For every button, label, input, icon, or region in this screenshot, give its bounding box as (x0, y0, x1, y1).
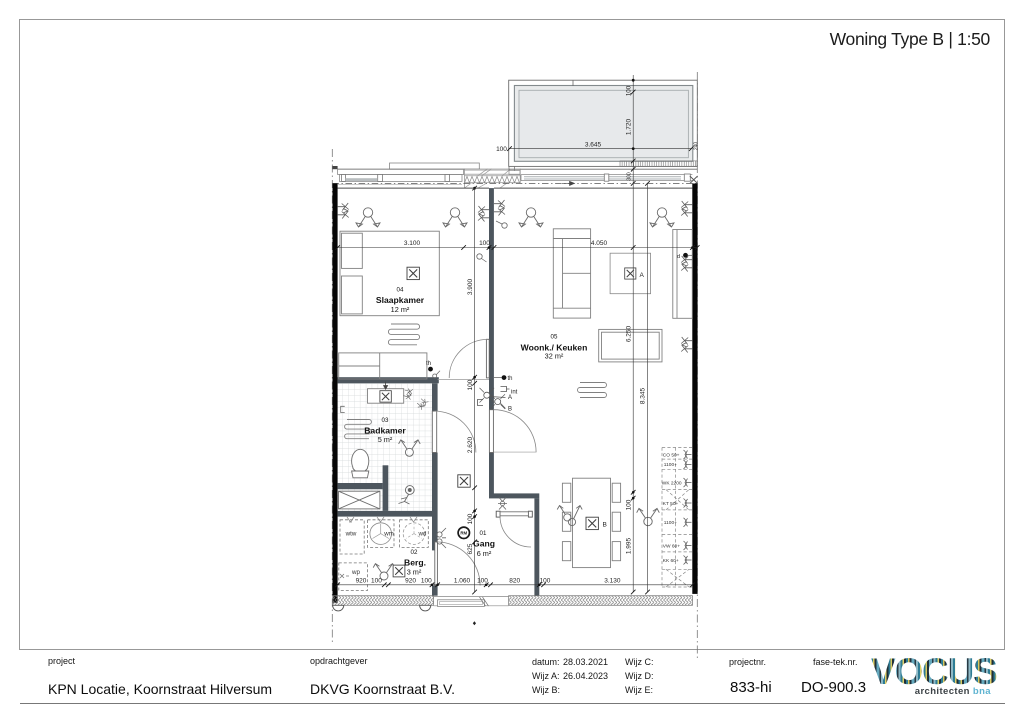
svg-text:04: 04 (397, 287, 404, 294)
svg-text:wm: wm (383, 530, 394, 537)
svg-text:3.900: 3.900 (467, 278, 474, 295)
svg-text:100: 100 (540, 577, 551, 584)
svg-text:32 m²: 32 m² (545, 351, 564, 360)
svg-text:wp: wp (351, 569, 360, 576)
svg-text:1.995: 1.995 (625, 537, 632, 554)
svg-text:Badkamer: Badkamer (364, 426, 406, 436)
svg-text:05: 05 (551, 333, 558, 340)
svg-text:WK 2200: WK 2200 (662, 480, 682, 486)
svg-text:A: A (640, 272, 645, 279)
svg-text:100: 100 (467, 513, 474, 524)
svg-text:1.060: 1.060 (454, 577, 471, 584)
svg-text:B: B (508, 407, 512, 413)
svg-text:KT 50+: KT 50+ (663, 501, 679, 507)
svg-text:820: 820 (509, 577, 520, 584)
svg-text:100: 100 (496, 146, 507, 153)
svg-text:4.050: 4.050 (591, 240, 608, 247)
svg-text:KK 60+: KK 60+ (663, 558, 679, 564)
svg-text:d: d (677, 254, 680, 260)
svg-text:300: 300 (626, 172, 632, 181)
svg-text:6.250: 6.250 (625, 325, 632, 342)
svg-text:12 m²: 12 m² (391, 305, 410, 314)
svg-text:920: 920 (405, 577, 416, 584)
svg-text:Slaapkamer: Slaapkamer (376, 295, 425, 305)
svg-text:100: 100 (477, 577, 488, 584)
svg-text:th: th (426, 361, 431, 367)
svg-text:3 m²: 3 m² (407, 568, 422, 577)
svg-text:Gang: Gang (473, 539, 495, 549)
svg-text:240: 240 (694, 142, 700, 151)
svg-text:100: 100 (421, 577, 432, 584)
svg-text:8.345: 8.345 (640, 387, 647, 404)
svg-text:3.645: 3.645 (585, 141, 602, 148)
svg-text:5 m²: 5 m² (378, 435, 393, 444)
svg-text:3.130: 3.130 (604, 577, 621, 584)
svg-text:CO 50+: CO 50+ (663, 452, 680, 458)
svg-text:02: 02 (411, 549, 418, 556)
svg-text:VW 60+: VW 60+ (663, 543, 680, 549)
svg-text:RM: RM (460, 531, 467, 536)
svg-text:2.620: 2.620 (467, 436, 474, 453)
svg-text:Berg.: Berg. (404, 558, 426, 568)
svg-text:1.720: 1.720 (626, 118, 633, 135)
svg-text:3.100: 3.100 (404, 240, 421, 247)
svg-text:100: 100 (467, 379, 474, 390)
svg-text:100: 100 (479, 240, 490, 247)
svg-text:1100+: 1100+ (664, 520, 677, 526)
svg-text:920: 920 (356, 577, 367, 584)
svg-text:B: B (603, 522, 607, 529)
svg-text:wd: wd (418, 530, 427, 537)
svg-text:6 m²: 6 m² (477, 549, 492, 558)
svg-text:100: 100 (626, 85, 633, 96)
svg-text:1100+: 1100+ (664, 462, 677, 468)
svg-text:wtw: wtw (345, 530, 357, 537)
svg-text:100: 100 (625, 499, 632, 510)
svg-text:100: 100 (371, 577, 382, 584)
svg-text:01: 01 (480, 530, 487, 537)
svg-text:A: A (508, 395, 512, 401)
svg-text:03: 03 (382, 417, 389, 424)
svg-text:th: th (508, 376, 513, 382)
